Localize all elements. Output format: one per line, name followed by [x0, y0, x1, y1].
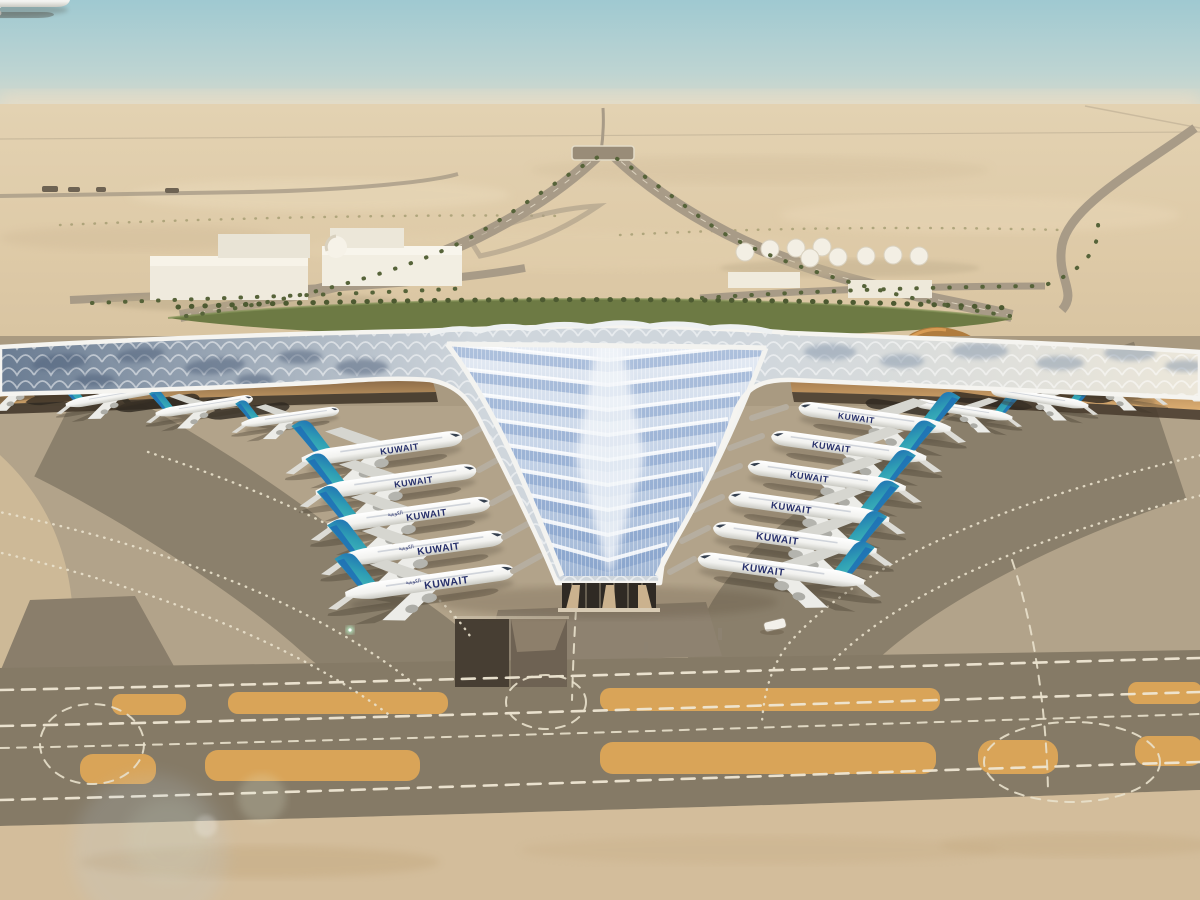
road-bridge [572, 146, 634, 160]
warehouse [728, 272, 800, 288]
apron-post [718, 628, 722, 640]
apron-post [644, 642, 648, 654]
terminal-entrance [558, 583, 660, 612]
warehouse [848, 280, 932, 298]
airport-rendering: KUWAIT KUWAIT KUWAIT الكويتية KUWAIT الك… [0, 0, 1200, 900]
